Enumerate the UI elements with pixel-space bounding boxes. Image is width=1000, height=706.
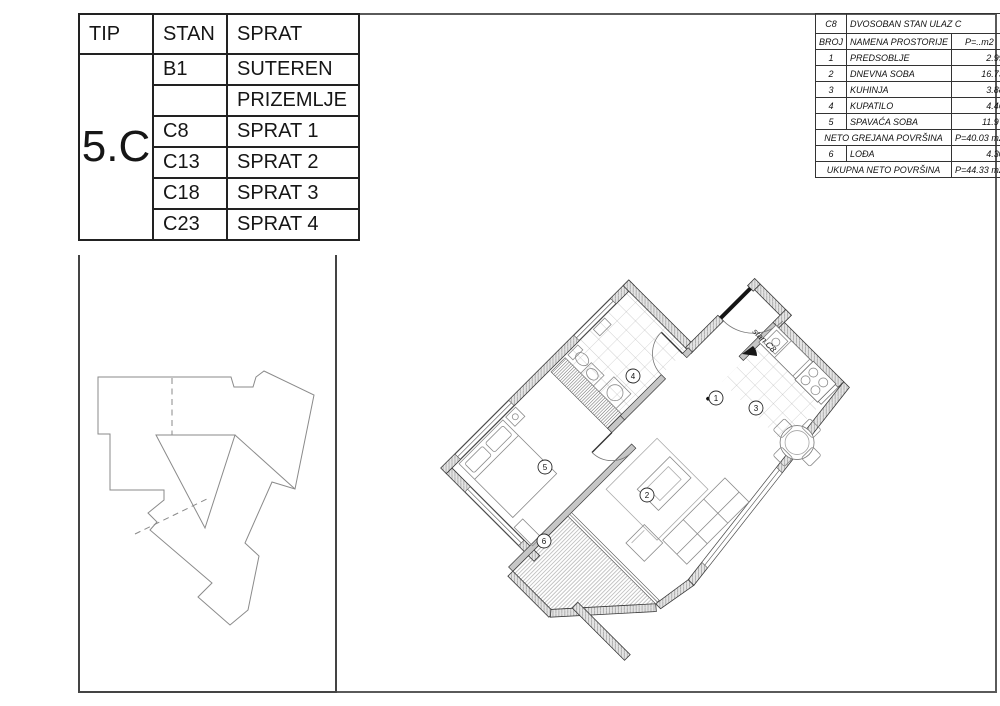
stan-cell: C13 — [153, 147, 227, 178]
sprat-cell: SPRAT 1 — [227, 116, 359, 147]
stan-cell: C23 — [153, 209, 227, 240]
unit-table-row: 5.CB1SUTEREN — [79, 54, 359, 85]
ukupna-label-cell: UKUPNA NETO POVRŠINA — [816, 162, 952, 178]
schedule-row: 3KUHINJA3.88 — [816, 82, 1000, 98]
stan-cell: B1 — [153, 54, 227, 85]
schedule-row: BROJNAMENA PROSTORIJEP=..m2 — [816, 34, 1000, 50]
room-name-cell: DNEVNA SOBA — [847, 66, 952, 82]
room-schedule-table: C8DVOSOBAN STAN ULAZ CBROJNAMENA PROSTOR… — [815, 13, 1000, 178]
key-plan-box — [78, 255, 337, 693]
unit-table-header: SPRAT — [227, 14, 359, 54]
room-marker-number: 1 — [714, 394, 719, 403]
schedule-row: 6LOĐA4.30 — [816, 146, 1000, 162]
sprat-cell: SUTEREN — [227, 54, 359, 85]
room-marker-number: 3 — [754, 404, 759, 413]
floor-plan-svg: stan C8 123456 — [440, 260, 860, 672]
room-name-cell: PREDSOBLJE — [847, 50, 952, 66]
entrance-door-leaf — [719, 287, 752, 320]
room-marker-number: 5 — [543, 463, 548, 472]
schedule-col-header: NAMENA PROSTORIJE — [847, 34, 952, 50]
key-plan-inner-triangle — [156, 435, 235, 528]
schedule-row: C8DVOSOBAN STAN ULAZ C — [816, 14, 1000, 34]
room-number-cell: 6 — [816, 146, 847, 162]
key-plan-dashed-diagonal — [135, 498, 209, 534]
unit-table-header: STAN — [153, 14, 227, 54]
unit-table-header: TIP — [79, 14, 153, 54]
schedule-row: 4KUPATILO4.46 — [816, 98, 1000, 114]
sprat-cell: SPRAT 2 — [227, 147, 359, 178]
sprat-cell: SPRAT 3 — [227, 178, 359, 209]
schedule-col-header: P=..m2 — [952, 34, 1000, 50]
room-name-cell: SPAVAĆA SOBA — [847, 114, 952, 130]
rug — [606, 438, 708, 540]
room-number-cell: 4 — [816, 98, 847, 114]
loggia-deck — [513, 516, 656, 659]
room-number-cell: 1 — [816, 50, 847, 66]
sprat-cell: PRIZEMLJE — [227, 85, 359, 116]
schedule-row: UKUPNA NETO POVRŠINAP=44.33 m2 — [816, 162, 1000, 178]
bedroom-door-leaf — [592, 433, 612, 453]
room-name-cell: KUHINJA — [847, 82, 952, 98]
schedule-row: 2DNEVNA SOBA16.73 — [816, 66, 1000, 82]
coffee-table — [637, 457, 691, 511]
room-area-cell: 4.30 — [952, 146, 1000, 162]
schedule-row: NETO GREJANA POVRŠINAP=40.03 m2 — [816, 130, 1000, 146]
drawing-sheet: TIPSTANSPRAT5.CB1SUTERENPRIZEMLJEC8SPRAT… — [0, 0, 1000, 706]
unit-type-cell: 5.C — [79, 54, 153, 240]
unit-floor-table: TIPSTANSPRAT5.CB1SUTERENPRIZEMLJEC8SPRAT… — [78, 13, 360, 241]
room-marker-number: 6 — [542, 537, 547, 546]
ukupna-value-cell: P=44.33 m2 — [952, 162, 1000, 178]
schedule-row: 1PREDSOBLJE2.99 — [816, 50, 1000, 66]
schedule-col-header: BROJ — [816, 34, 847, 50]
stan-cell: C18 — [153, 178, 227, 209]
room-name-cell: LOĐA — [847, 146, 952, 162]
building-outline — [98, 371, 314, 625]
schedule-row: 5SPAVAĆA SOBA11.97 — [816, 114, 1000, 130]
stan-cell: C8 — [153, 116, 227, 147]
room-area-cell: 4.46 — [952, 98, 1000, 114]
sprat-cell: SPRAT 4 — [227, 209, 359, 240]
room-number-cell: 5 — [816, 114, 847, 130]
unit-title-cell: DVOSOBAN STAN ULAZ C — [847, 14, 1000, 34]
room-name-cell: KUPATILO — [847, 98, 952, 114]
armchair — [626, 525, 663, 562]
neto-label-cell: NETO GREJANA POVRŠINA — [816, 130, 952, 146]
room-number-cell: 2 — [816, 66, 847, 82]
key-plan-divider — [235, 435, 295, 489]
room-marker-number: 2 — [645, 491, 650, 500]
room-area-cell: 2.99 — [952, 50, 1000, 66]
room-marker-number: 4 — [631, 372, 636, 381]
unit-id-cell: C8 — [816, 14, 847, 34]
stan-cell — [153, 85, 227, 116]
room-area-cell: 3.88 — [952, 82, 1000, 98]
neto-value-cell: P=40.03 m2 — [952, 130, 1000, 146]
room-number-cell: 3 — [816, 82, 847, 98]
key-plan-svg — [80, 255, 335, 689]
room-area-cell: 16.73 — [952, 66, 1000, 82]
room-area-cell: 11.97 — [952, 114, 1000, 130]
